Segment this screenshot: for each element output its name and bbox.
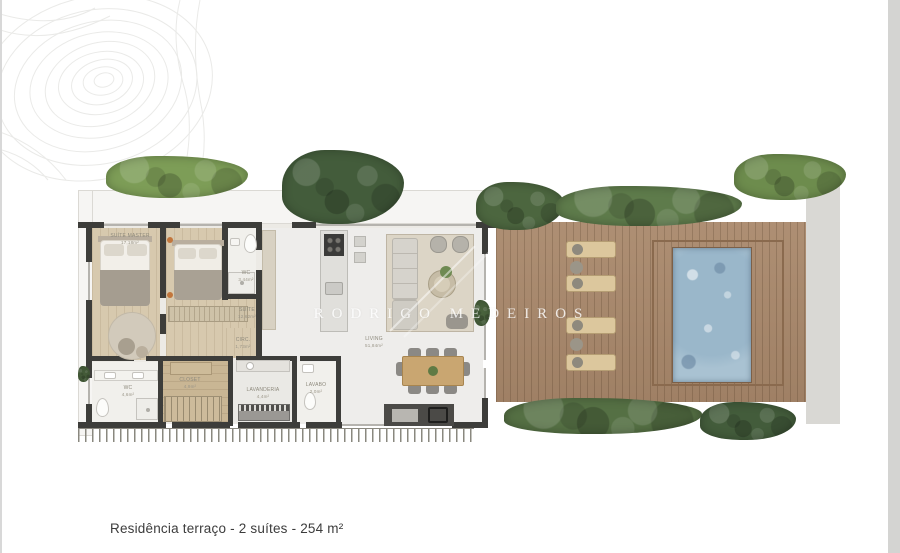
pillow xyxy=(104,244,124,256)
blanket xyxy=(174,270,222,300)
wall-segment xyxy=(336,356,341,426)
concrete-path xyxy=(806,186,840,424)
laundry-counter xyxy=(236,360,290,372)
table-centerpiece xyxy=(428,366,438,376)
wall-segment xyxy=(158,356,163,426)
sink xyxy=(104,372,116,379)
hedge xyxy=(504,398,702,434)
room-label-suite-master: SUÍTE MASTER 17,18m² xyxy=(100,233,160,245)
lounger-headrest xyxy=(572,278,583,289)
laundry-sink xyxy=(246,362,254,370)
toilet xyxy=(96,398,109,417)
room-area: 2,0m² xyxy=(296,389,336,395)
room-name: CIRC. xyxy=(236,337,251,343)
room-name: LAVABO xyxy=(306,382,326,388)
washer-dryer-unit xyxy=(238,404,290,421)
wall-segment xyxy=(482,398,488,428)
armchair xyxy=(452,236,469,253)
counter-sink xyxy=(392,409,418,422)
room-area: 1,73m² xyxy=(223,344,263,350)
wall-segment xyxy=(482,222,488,254)
closet-dresser xyxy=(170,362,212,375)
room-name: SUÍTE xyxy=(239,307,255,313)
room-area: 12,62m² xyxy=(227,314,267,320)
deck-side-table xyxy=(570,261,583,274)
room-label-wc: WC 4,6m² xyxy=(103,385,153,397)
armchair xyxy=(430,236,447,253)
sofa xyxy=(392,238,418,300)
pillow xyxy=(127,244,147,256)
room-name: WC xyxy=(124,385,133,391)
sink xyxy=(230,238,240,246)
watermark-text: RODRIGO MEDEIROS xyxy=(296,306,608,323)
room-label-lavanderia: LAVANDERIA 4,4m² xyxy=(236,387,290,399)
caption: Residência terraço - 2 suítes - 254 m² xyxy=(110,521,343,536)
wall-segment xyxy=(228,356,233,426)
ottoman xyxy=(136,346,148,358)
suite-bed xyxy=(172,240,224,302)
wall-cabinet xyxy=(354,252,366,263)
room-label-suite-wc: WC 3,44m² xyxy=(226,270,266,282)
room-name: LAVANDERIA xyxy=(247,387,280,393)
room-label-lavabo: LAVABO 2,0m² xyxy=(296,382,336,394)
wall-segment xyxy=(86,222,92,262)
topography-contours xyxy=(0,0,218,182)
room-label-closet: CLOSET 4,9m² xyxy=(165,377,215,389)
right-edge-strip xyxy=(888,0,900,553)
ottoman xyxy=(118,338,135,355)
room-area: 3,44m² xyxy=(226,277,266,283)
room-area: 17,18m² xyxy=(100,240,160,246)
room-label-living: LIVING 51,84m² xyxy=(349,336,399,348)
wall-segment xyxy=(222,294,262,299)
room-area: 4,6m² xyxy=(103,392,153,398)
window xyxy=(88,262,90,300)
room-name: LIVING xyxy=(365,336,383,342)
wall-segment xyxy=(300,356,338,361)
window xyxy=(180,224,226,226)
blanket xyxy=(100,270,150,306)
lounger-headrest xyxy=(572,357,583,368)
room-area: 51,84m² xyxy=(349,343,399,349)
hedge xyxy=(700,402,796,440)
room-label-circ: CIRC. 1,73m² xyxy=(223,337,263,349)
pillow xyxy=(178,248,196,259)
hedge xyxy=(556,186,742,226)
facade-louver-band xyxy=(78,428,474,442)
deck-side-table xyxy=(570,338,583,351)
bedside-lamp xyxy=(167,292,173,298)
cooktop xyxy=(324,234,344,256)
toilet xyxy=(304,392,316,410)
wall-segment xyxy=(160,314,166,334)
wall-segment xyxy=(160,222,166,298)
island-sink xyxy=(325,282,343,295)
sink xyxy=(132,372,144,379)
grill xyxy=(428,407,448,423)
lounger-headrest xyxy=(572,244,583,255)
window xyxy=(316,224,476,226)
pool xyxy=(672,247,752,383)
suite-master-bed xyxy=(98,236,152,308)
room-name: SUÍTE MASTER xyxy=(110,233,149,239)
stairs xyxy=(164,396,222,422)
glass-door xyxy=(484,254,486,422)
bedside-lamp xyxy=(167,237,173,243)
toilet xyxy=(244,234,257,253)
window xyxy=(104,224,148,226)
left-edge-strip xyxy=(0,0,2,553)
wall-cabinet xyxy=(354,236,366,247)
glass-mullion xyxy=(483,360,487,368)
pillow xyxy=(199,248,217,259)
room-area: 4,4m² xyxy=(236,394,290,400)
floor-plan-image: SUÍTE MASTER 17,18m² WC 3,44m² SUÍTE 12,… xyxy=(0,0,900,553)
room-label-suite: SUÍTE 12,62m² xyxy=(227,307,267,319)
room-area: 4,9m² xyxy=(165,384,215,390)
sink xyxy=(302,364,314,373)
window xyxy=(88,378,90,404)
room-name: CLOSET xyxy=(179,377,200,383)
washer-control-band xyxy=(239,405,289,411)
shower-drain xyxy=(146,408,150,412)
room-name: WC xyxy=(242,270,251,276)
wall-segment xyxy=(292,222,316,228)
